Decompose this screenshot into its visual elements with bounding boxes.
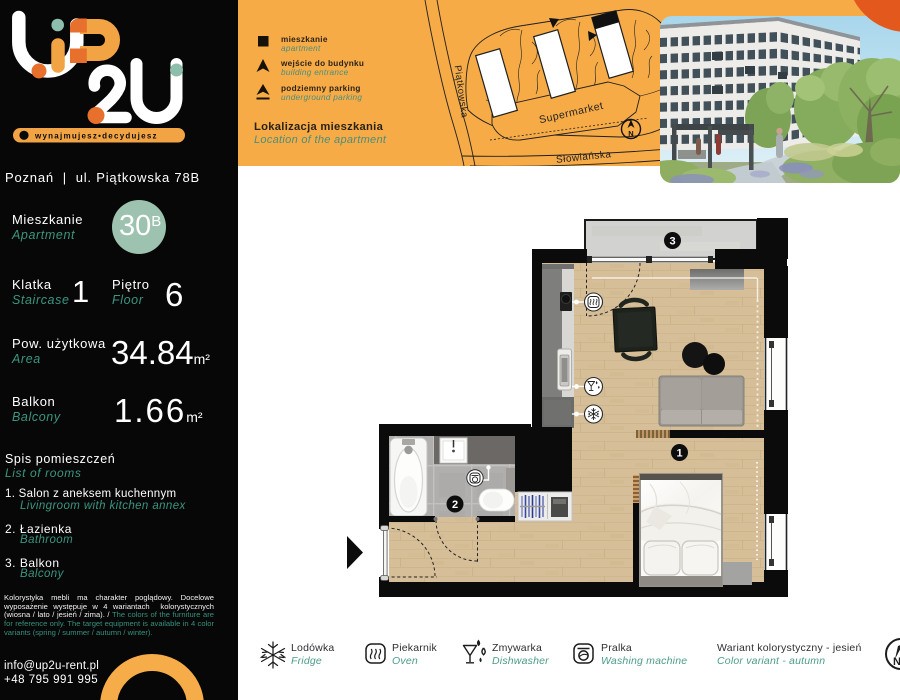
svg-text:Piekarnik: Piekarnik (392, 642, 438, 654)
svg-text:Lokalizacja mieszkania: Lokalizacja mieszkania (254, 121, 384, 133)
svg-text:Wariant kolorystyczny - jesień: Wariant kolorystyczny - jesień (717, 642, 861, 654)
svg-text:N: N (893, 656, 900, 668)
svg-text:Color variant - autumn: Color variant - autumn (717, 655, 825, 667)
svg-text:Location of the apartment: Location of the apartment (254, 134, 387, 146)
svg-text:underground parking: underground parking (281, 93, 362, 102)
svg-text:Washing machine: Washing machine (601, 655, 687, 667)
svg-text:Fridge: Fridge (291, 655, 322, 667)
svg-text:building entrance: building entrance (281, 68, 349, 77)
svg-text:podziemny parking: podziemny parking (281, 84, 361, 93)
svg-text:wynajmujesz•decydujesz: wynajmujesz•decydujesz (34, 132, 158, 141)
svg-text:N: N (628, 129, 633, 138)
svg-text:Oven: Oven (392, 655, 418, 667)
svg-text:apartment: apartment (281, 44, 321, 53)
svg-text:Lodówka: Lodówka (291, 642, 334, 654)
svg-text:wejście do budynku: wejście do budynku (280, 59, 364, 68)
svg-text:2: 2 (452, 499, 458, 511)
svg-text:Zmywarka: Zmywarka (492, 642, 542, 654)
svg-text:1: 1 (676, 448, 682, 460)
svg-text:mieszkanie: mieszkanie (281, 35, 328, 44)
svg-text:Dishwasher: Dishwasher (492, 655, 549, 667)
svg-text:3: 3 (669, 236, 675, 248)
svg-text:Pralka: Pralka (601, 642, 632, 654)
